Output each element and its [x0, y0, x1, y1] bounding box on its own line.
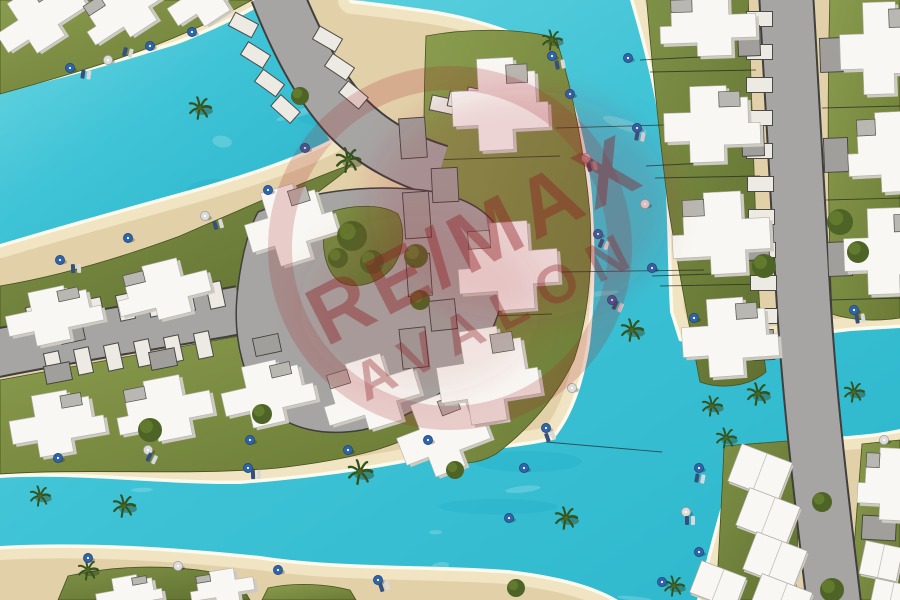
villa-roof-block	[856, 119, 875, 136]
tree-highlight	[754, 256, 767, 269]
tree-cluster	[446, 461, 464, 479]
deep-water-patch	[439, 499, 558, 515]
umbrella-pole-top	[177, 565, 179, 567]
tree-highlight	[508, 580, 518, 590]
tree-cluster	[138, 418, 162, 442]
umbrella-pole-top	[523, 467, 525, 469]
palm-crown	[852, 390, 856, 394]
tree-cluster	[847, 241, 869, 263]
villa-roof-block	[866, 453, 880, 468]
umbrella-pole-top	[107, 59, 109, 61]
umbrella-pole-top	[661, 581, 663, 583]
parking-stall	[748, 177, 774, 192]
palm-crown	[564, 516, 568, 520]
umbrella-pole-top	[571, 387, 573, 389]
parking-stall	[747, 78, 773, 93]
umbrella-pole-top	[545, 427, 547, 429]
umbrella-pole-top	[204, 215, 206, 217]
palm-crown	[86, 568, 90, 572]
tree-highlight	[292, 88, 302, 98]
driveway	[823, 138, 848, 173]
lounger	[71, 264, 75, 273]
umbrella-pole-top	[149, 45, 151, 47]
palm-crown	[550, 38, 554, 42]
lounger	[77, 264, 81, 273]
umbrella-pole-top	[636, 127, 638, 129]
lounger	[257, 470, 261, 479]
umbrella-pole-top	[59, 259, 61, 261]
umbrella-pole-top	[127, 237, 129, 239]
palm-crown	[346, 158, 351, 163]
tree-highlight	[814, 494, 825, 505]
umbrella-pole-top	[249, 439, 251, 441]
tree-cluster	[752, 254, 776, 278]
tree-highlight	[822, 580, 835, 593]
lounger	[685, 516, 689, 525]
umbrella-pole-top	[87, 557, 89, 559]
villa-roof-block	[735, 302, 757, 319]
umbrella-pole-top	[627, 57, 629, 59]
umbrella-pole-top	[57, 457, 59, 459]
site-plan-svg: RE/MAX AVALON	[0, 0, 900, 600]
umbrella-pole-top	[347, 449, 349, 451]
umbrella-pole-top	[883, 439, 885, 441]
umbrella-pole-top	[247, 467, 249, 469]
palm-crown	[38, 494, 42, 498]
palm-crown	[724, 436, 728, 440]
umbrella-pole-top	[693, 317, 695, 319]
villa-roof-block	[719, 91, 741, 107]
palm-crown	[672, 584, 676, 588]
palm-crown	[358, 470, 363, 475]
umbrella-pole-top	[69, 67, 71, 69]
umbrella-pole-top	[191, 31, 193, 33]
umbrella-pole-top	[685, 511, 687, 513]
umbrella-pole-top	[377, 579, 379, 581]
master-plan-rendering: RE/MAX AVALON	[0, 0, 900, 600]
tree-highlight	[829, 211, 843, 225]
umbrella-pole-top	[147, 449, 149, 451]
tree-cluster	[507, 579, 525, 597]
lounger	[691, 516, 695, 525]
tree-highlight	[140, 420, 153, 433]
tree-cluster	[827, 209, 853, 235]
umbrella-pole-top	[267, 189, 269, 191]
tree-cluster	[291, 87, 309, 105]
palm-crown	[198, 106, 202, 110]
tree-cluster	[812, 492, 832, 512]
umbrella-pole-top	[569, 93, 571, 95]
tree-cluster	[252, 404, 272, 424]
umbrella-pole-top	[698, 467, 700, 469]
palm-crown	[756, 392, 760, 396]
palm-crown	[122, 504, 126, 508]
villa-roof-block	[894, 214, 900, 232]
umbrella-pole-top	[427, 439, 429, 441]
villa-roof-block	[682, 199, 704, 217]
villa-roof-block	[671, 0, 693, 13]
palm-crown	[630, 328, 634, 332]
lounger	[251, 470, 255, 479]
umbrella-pole-top	[853, 309, 855, 311]
umbrella-pole-top	[698, 551, 700, 553]
palm-crown	[710, 404, 714, 408]
tree-highlight	[254, 406, 265, 417]
umbrella-pole-top	[551, 55, 553, 57]
villa-roof-block	[889, 8, 900, 27]
umbrella-pole-top	[277, 569, 279, 571]
tree-highlight	[447, 462, 457, 472]
umbrella-pole-top	[508, 517, 510, 519]
tree-highlight	[849, 243, 861, 255]
